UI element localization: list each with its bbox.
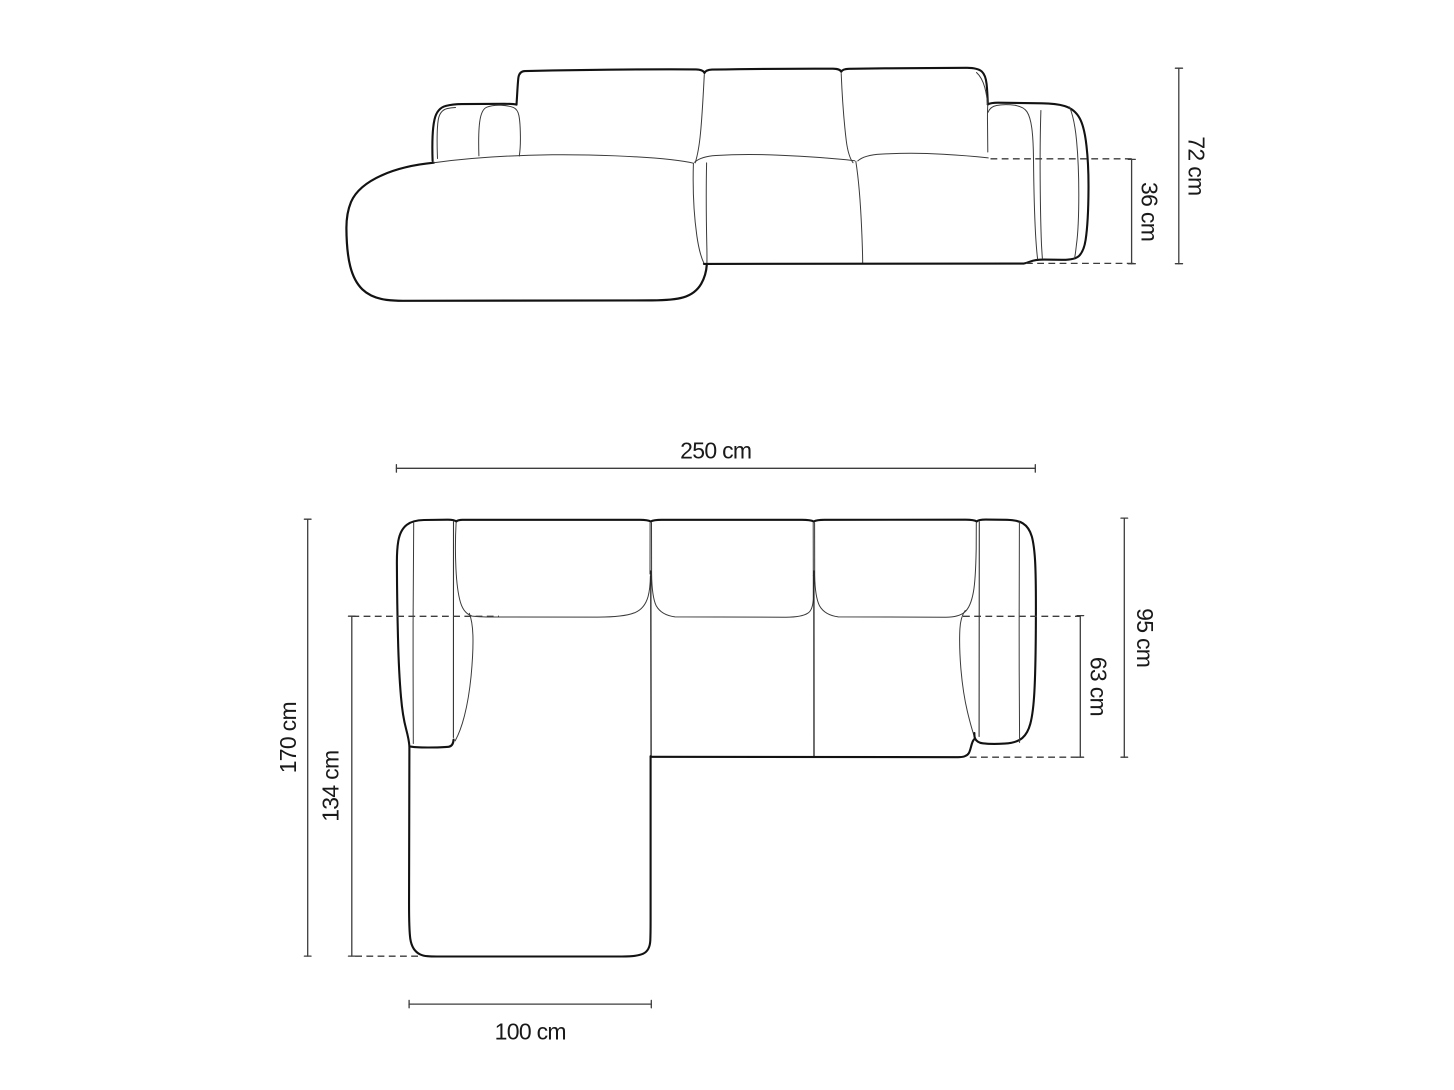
svg-text:100 cm: 100 cm [495, 1019, 566, 1045]
svg-text:134 cm: 134 cm [317, 751, 343, 822]
svg-text:72 cm: 72 cm [1184, 136, 1210, 195]
svg-text:250 cm: 250 cm [680, 438, 751, 464]
svg-text:63 cm: 63 cm [1085, 657, 1111, 716]
svg-text:170 cm: 170 cm [275, 702, 301, 773]
svg-text:95 cm: 95 cm [1132, 608, 1158, 667]
svg-text:36 cm: 36 cm [1137, 182, 1163, 241]
